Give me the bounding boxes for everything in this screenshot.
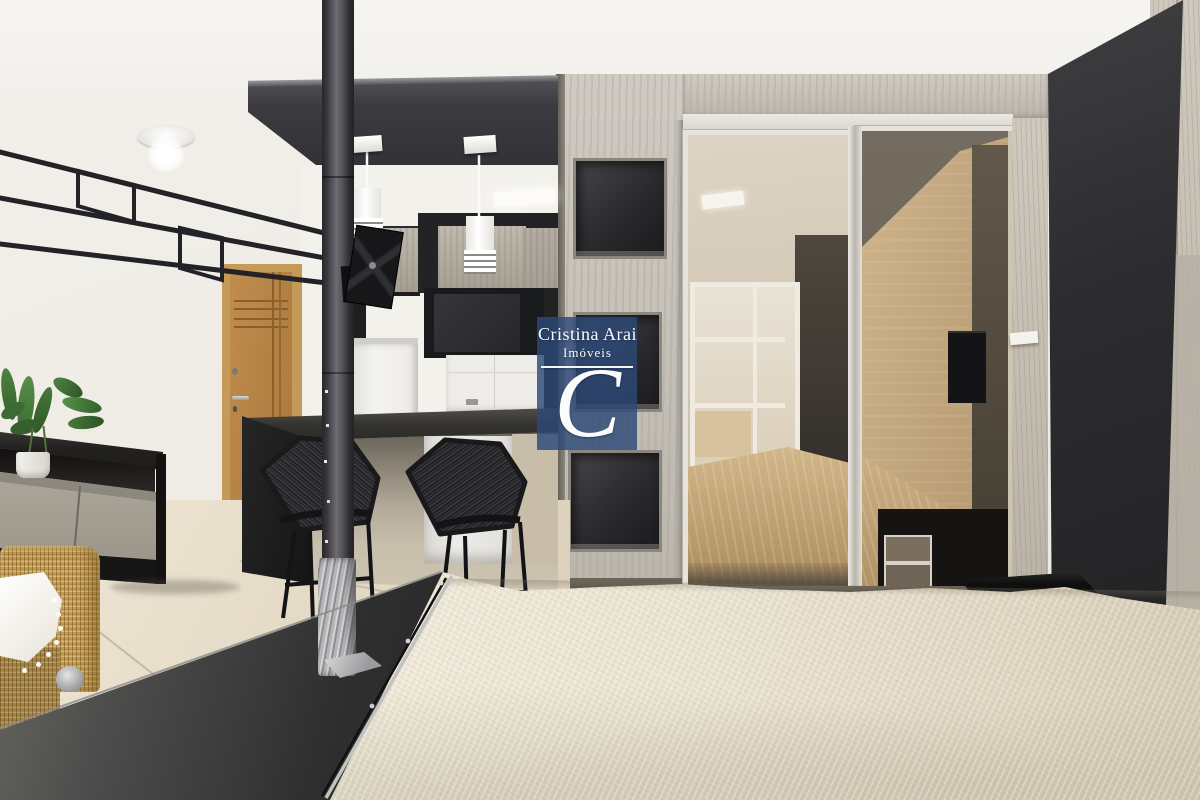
watermark-title: Cristina Arai: [530, 324, 645, 345]
studio-apartment-photo: Cristina Arai Imóveis C: [0, 0, 1200, 800]
agency-watermark: Cristina Arai Imóveis C: [530, 312, 645, 457]
watermark-monogram: C: [530, 360, 645, 445]
